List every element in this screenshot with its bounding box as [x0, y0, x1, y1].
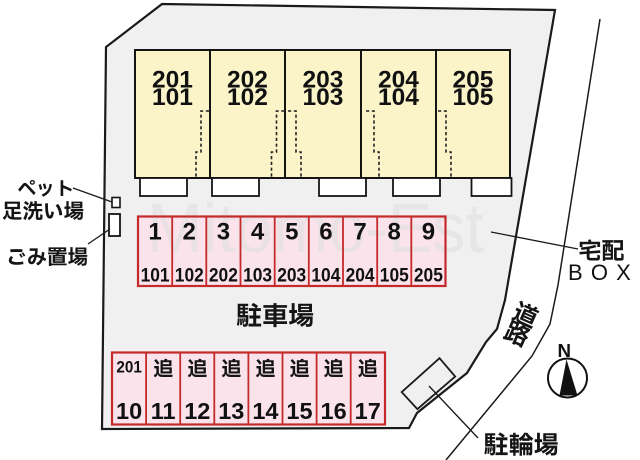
svg-text:201: 201	[116, 358, 142, 377]
svg-text:6: 6	[319, 218, 332, 245]
svg-text:N: N	[558, 340, 572, 361]
svg-text:205: 205	[414, 265, 443, 287]
svg-text:14: 14	[252, 398, 278, 424]
svg-text:9: 9	[422, 218, 435, 245]
svg-text:104: 104	[378, 84, 419, 111]
svg-text:8: 8	[388, 218, 401, 245]
svg-text:10: 10	[116, 398, 142, 424]
svg-text:11: 11	[151, 398, 176, 424]
svg-text:17: 17	[355, 398, 381, 424]
svg-text:13: 13	[218, 398, 244, 424]
svg-text:102: 102	[227, 84, 268, 111]
svg-text:105: 105	[380, 265, 409, 287]
svg-text:15: 15	[286, 398, 312, 424]
svg-text:105: 105	[453, 84, 494, 111]
svg-text:2: 2	[183, 218, 196, 245]
svg-text:103: 103	[303, 84, 344, 111]
svg-text:102: 102	[175, 265, 204, 287]
svg-text:101: 101	[152, 84, 193, 111]
svg-text:12: 12	[184, 398, 210, 424]
svg-text:204: 204	[346, 265, 375, 287]
svg-text:203: 203	[277, 265, 306, 287]
svg-text:101: 101	[141, 265, 170, 287]
svg-text:BOX: BOX	[568, 260, 639, 285]
svg-text:7: 7	[353, 218, 366, 245]
svg-text:3: 3	[217, 218, 230, 245]
svg-text:5: 5	[285, 218, 298, 245]
svg-text:1: 1	[148, 218, 161, 245]
svg-text:4: 4	[251, 218, 265, 245]
svg-text:202: 202	[209, 265, 238, 287]
svg-text:16: 16	[321, 398, 347, 424]
svg-text:104: 104	[311, 265, 340, 287]
svg-text:103: 103	[243, 265, 272, 287]
